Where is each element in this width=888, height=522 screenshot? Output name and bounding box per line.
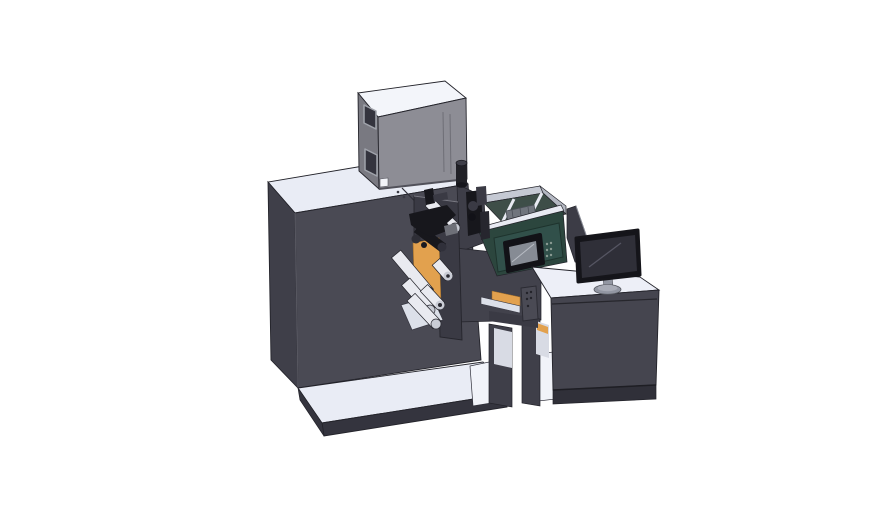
cylinder-base [456, 182, 467, 188]
tower-roller-large [468, 201, 478, 211]
screw-dot-1 [397, 191, 400, 194]
printhead-roller-2 [421, 242, 427, 248]
exhaust-cylinder [456, 160, 467, 188]
cad-render-stage [0, 0, 888, 522]
cad-render-canvas [0, 0, 888, 522]
roller-rubber-cap [438, 243, 447, 252]
monitor-base-top [598, 285, 618, 291]
mechanism-tower [466, 186, 490, 240]
sensor-bracket [521, 286, 538, 321]
printhead-roller-1 [412, 235, 421, 244]
leg-1-inner [494, 328, 512, 368]
box-corner-plate [380, 178, 388, 187]
machine-left-face [268, 182, 298, 388]
desk-front [551, 290, 659, 390]
roller-short-1-hub [438, 303, 442, 307]
support-leg-1 [489, 324, 512, 407]
bracket-plate [521, 286, 538, 321]
cylinder-cap [456, 160, 467, 166]
tower-roller-small [468, 213, 476, 221]
roller-long-3-cap [431, 319, 441, 329]
top-electronics-box [358, 81, 467, 189]
tower-side-block [480, 211, 490, 240]
roller-short-2-hub [446, 274, 450, 278]
tower-top-block [476, 186, 487, 206]
screw-dot-2 [403, 196, 406, 199]
cylinder-body [456, 163, 467, 185]
monitor-screen [580, 235, 637, 278]
